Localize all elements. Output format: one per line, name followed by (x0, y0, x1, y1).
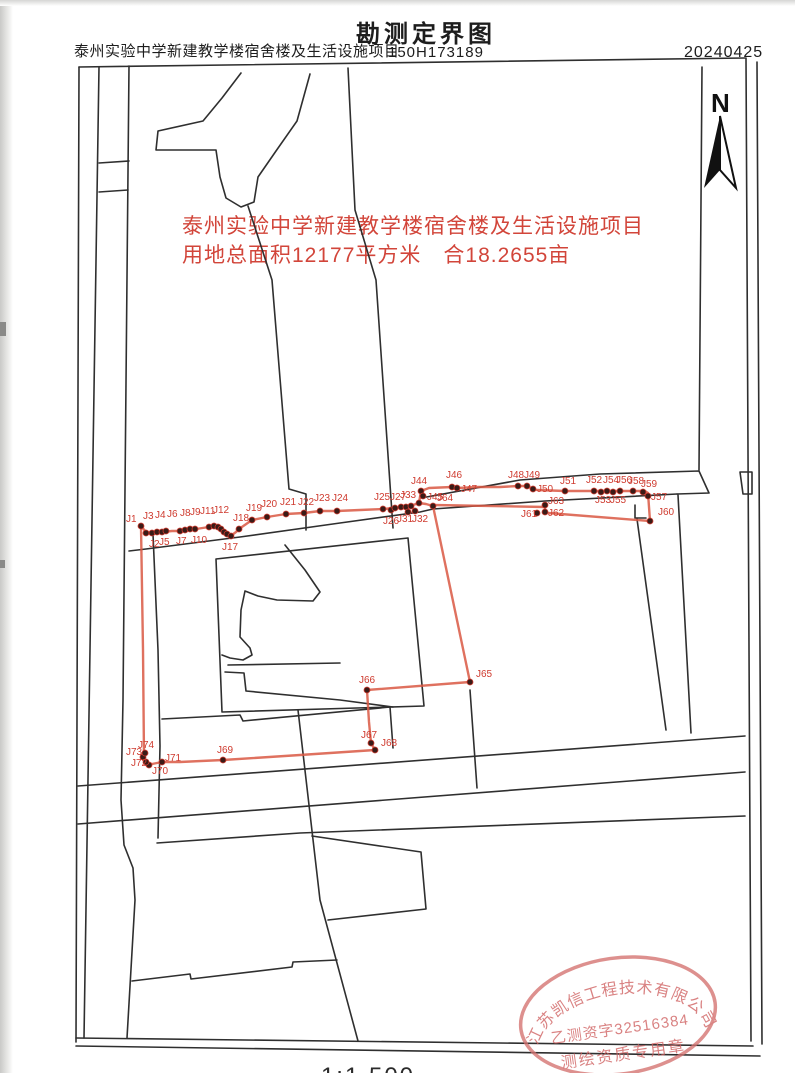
parcel-line (222, 545, 320, 660)
boundary-point-label: J49 (524, 470, 541, 481)
boundary-point (408, 503, 414, 509)
boundary-point-label: J23 (314, 493, 331, 504)
boundary-point-label: J46 (446, 470, 463, 481)
boundary-point-label: J22 (298, 497, 315, 508)
boundary-point-label: J5 (159, 537, 170, 548)
parcel-line (635, 505, 646, 518)
parcel-linework (76, 58, 762, 1056)
boundary-point (364, 687, 370, 693)
boundary-point (264, 514, 270, 520)
scale-text: 1:1 500 (321, 1063, 415, 1073)
boundary-point-label: J6 (167, 509, 178, 520)
boundary-point-label: J3 (143, 511, 154, 522)
boundary-point (283, 511, 289, 517)
parcel-line (746, 58, 751, 1041)
parcel-line (157, 816, 745, 843)
parcel-line (99, 190, 128, 192)
parcel-line (156, 73, 310, 207)
boundary-point (454, 485, 460, 491)
survey-map-page: { "header": { "project_name": "泰州实验中学新建教… (0, 0, 795, 1073)
boundary-point-label: J24 (332, 493, 349, 504)
boundary-point-label: J70 (152, 766, 169, 777)
boundary-point-label: J72 (131, 758, 148, 769)
parcel-line (162, 707, 393, 748)
boundary-point-label: J44 (411, 476, 428, 487)
parcel-line (121, 66, 135, 1038)
boundary-point (163, 528, 169, 534)
boundary-point-label: J64 (437, 493, 454, 504)
boundary-point-label: J4 (155, 510, 166, 521)
parcel-line (248, 206, 306, 530)
boundary-point (515, 483, 521, 489)
boundary-point-label: J74 (138, 740, 155, 751)
parcel-line (312, 836, 426, 920)
parcel-line (153, 534, 160, 838)
boundary-point-label: J17 (222, 542, 239, 553)
boundary-point-label: J52 (586, 475, 603, 486)
boundary-point (647, 518, 653, 524)
boundary-point-label: J66 (359, 675, 376, 686)
parcel-line (78, 772, 745, 824)
boundary-point-label: J55 (610, 495, 627, 506)
boundary-point (380, 506, 386, 512)
boundary-point-label: J12 (213, 505, 230, 516)
north-label: N (711, 88, 730, 118)
parcel-line (699, 67, 702, 470)
parcel-line (298, 710, 358, 1041)
boundary-point-label: J25 (374, 492, 391, 503)
boundary-point (372, 747, 378, 753)
boundary-point-label: J21 (280, 497, 297, 508)
boundary-point-label: J47 (461, 484, 478, 495)
parcel-line (678, 495, 691, 733)
boundary-point-label: J61 (521, 509, 538, 520)
boundary-point (228, 533, 234, 539)
boundary-point-label: J69 (217, 745, 234, 756)
boundary-point-label: J63 (548, 496, 565, 507)
parcel-line (228, 663, 340, 665)
parcel-line (740, 472, 752, 494)
boundary-point (416, 500, 422, 506)
boundary-point (591, 488, 597, 494)
parcel-line (84, 67, 99, 1038)
boundary-point (392, 505, 398, 511)
boundary-point (236, 526, 242, 532)
parcel-line (132, 960, 337, 981)
boundary-point-label: J7 (176, 536, 187, 547)
boundary-point (138, 523, 144, 529)
company-stamp: 江苏凯信工程技术有限公司 乙测资字32516384 测绘资质专用章 (513, 945, 724, 1073)
boundary-point-label: J48 (508, 470, 525, 481)
boundary-point-label: J71 (165, 753, 182, 764)
boundary-point-label: J33 (400, 490, 417, 501)
boundary-point (430, 503, 436, 509)
boundary-point-label: J10 (191, 535, 208, 546)
boundary-point (420, 493, 426, 499)
boundary-point-label: J18 (233, 513, 250, 524)
boundary-point (143, 530, 149, 536)
parcel-line (79, 58, 745, 67)
parcel-line (216, 538, 424, 712)
parcel-line (76, 67, 79, 1042)
boundary-point-label: J62 (548, 508, 565, 519)
boundary-point (192, 526, 198, 532)
boundary-point (301, 510, 307, 516)
north-arrow-right-blade (720, 116, 736, 188)
boundary-point-label: J51 (560, 476, 577, 487)
parcel-line (99, 161, 129, 163)
boundary-point-label: J65 (476, 669, 493, 680)
boundary-point-label: J50 (537, 484, 554, 495)
boundary-point (317, 508, 323, 514)
boundary-point-label: J20 (261, 499, 278, 510)
boundary-point (630, 488, 636, 494)
boundary-point-label: J1 (126, 514, 137, 525)
boundary-point (524, 483, 530, 489)
boundary-point (604, 488, 610, 494)
parcel-line (757, 62, 762, 1044)
boundary-point-label: J67 (361, 730, 378, 741)
boundary-point-label: J32 (412, 514, 429, 525)
boundary-point-label: J59 (641, 479, 658, 490)
boundary-point-label: J60 (658, 507, 675, 518)
boundary-point (617, 488, 623, 494)
parcel-line (637, 519, 666, 730)
boundary-point-label: J57 (651, 492, 668, 503)
boundary-point (220, 757, 226, 763)
boundary-point (249, 517, 255, 523)
boundary-point (334, 508, 340, 514)
boundary-point (562, 488, 568, 494)
boundary-point-label: J68 (381, 738, 398, 749)
parcel-line (348, 68, 393, 528)
north-arrow-left-blade (704, 116, 720, 188)
survey-map-canvas: J1J2J3J4J5J6J7J8J9J10J11J12J17J18J19J20J… (0, 0, 795, 1073)
parcel-line (470, 690, 477, 788)
boundary-point (530, 486, 536, 492)
north-arrow: N (704, 88, 736, 188)
boundary-point (467, 679, 473, 685)
